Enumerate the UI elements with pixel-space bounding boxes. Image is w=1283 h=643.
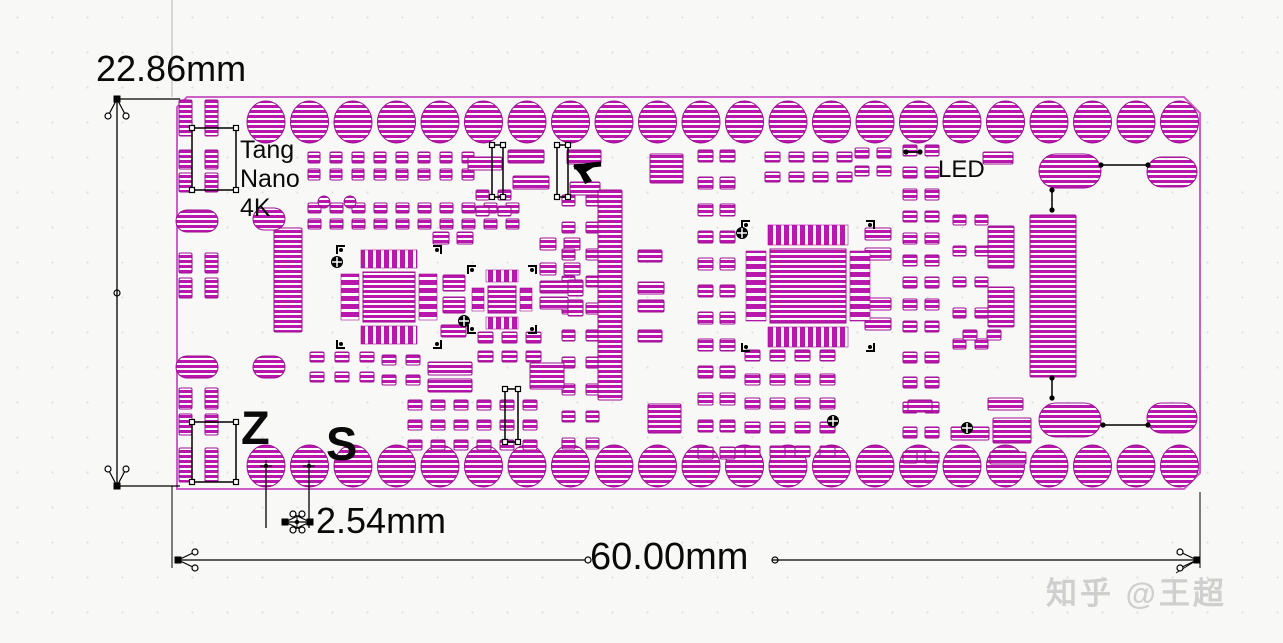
watermark-text: 知乎 @王超 xyxy=(1046,568,1227,613)
board-name-line1: Tang xyxy=(240,136,300,165)
silkscreen-s-label: S xyxy=(326,416,357,471)
width-dimension-label: 60.00mm xyxy=(590,536,748,579)
board-name-label: Tang Nano 4K xyxy=(240,136,300,222)
height-dimension-label: 22.86mm xyxy=(96,48,246,90)
board-name-line2: Nano xyxy=(240,165,300,194)
board-name-line3: 4K xyxy=(240,194,300,223)
silkscreen-z-label: Z xyxy=(241,400,270,455)
pcb-viewer-canvas[interactable]: 22.86mm Tang Nano 4K LED Z S 2.54mm 60.0… xyxy=(0,0,1283,643)
led-label: LED xyxy=(938,156,985,184)
pitch-dimension-label: 2.54mm xyxy=(316,500,446,542)
